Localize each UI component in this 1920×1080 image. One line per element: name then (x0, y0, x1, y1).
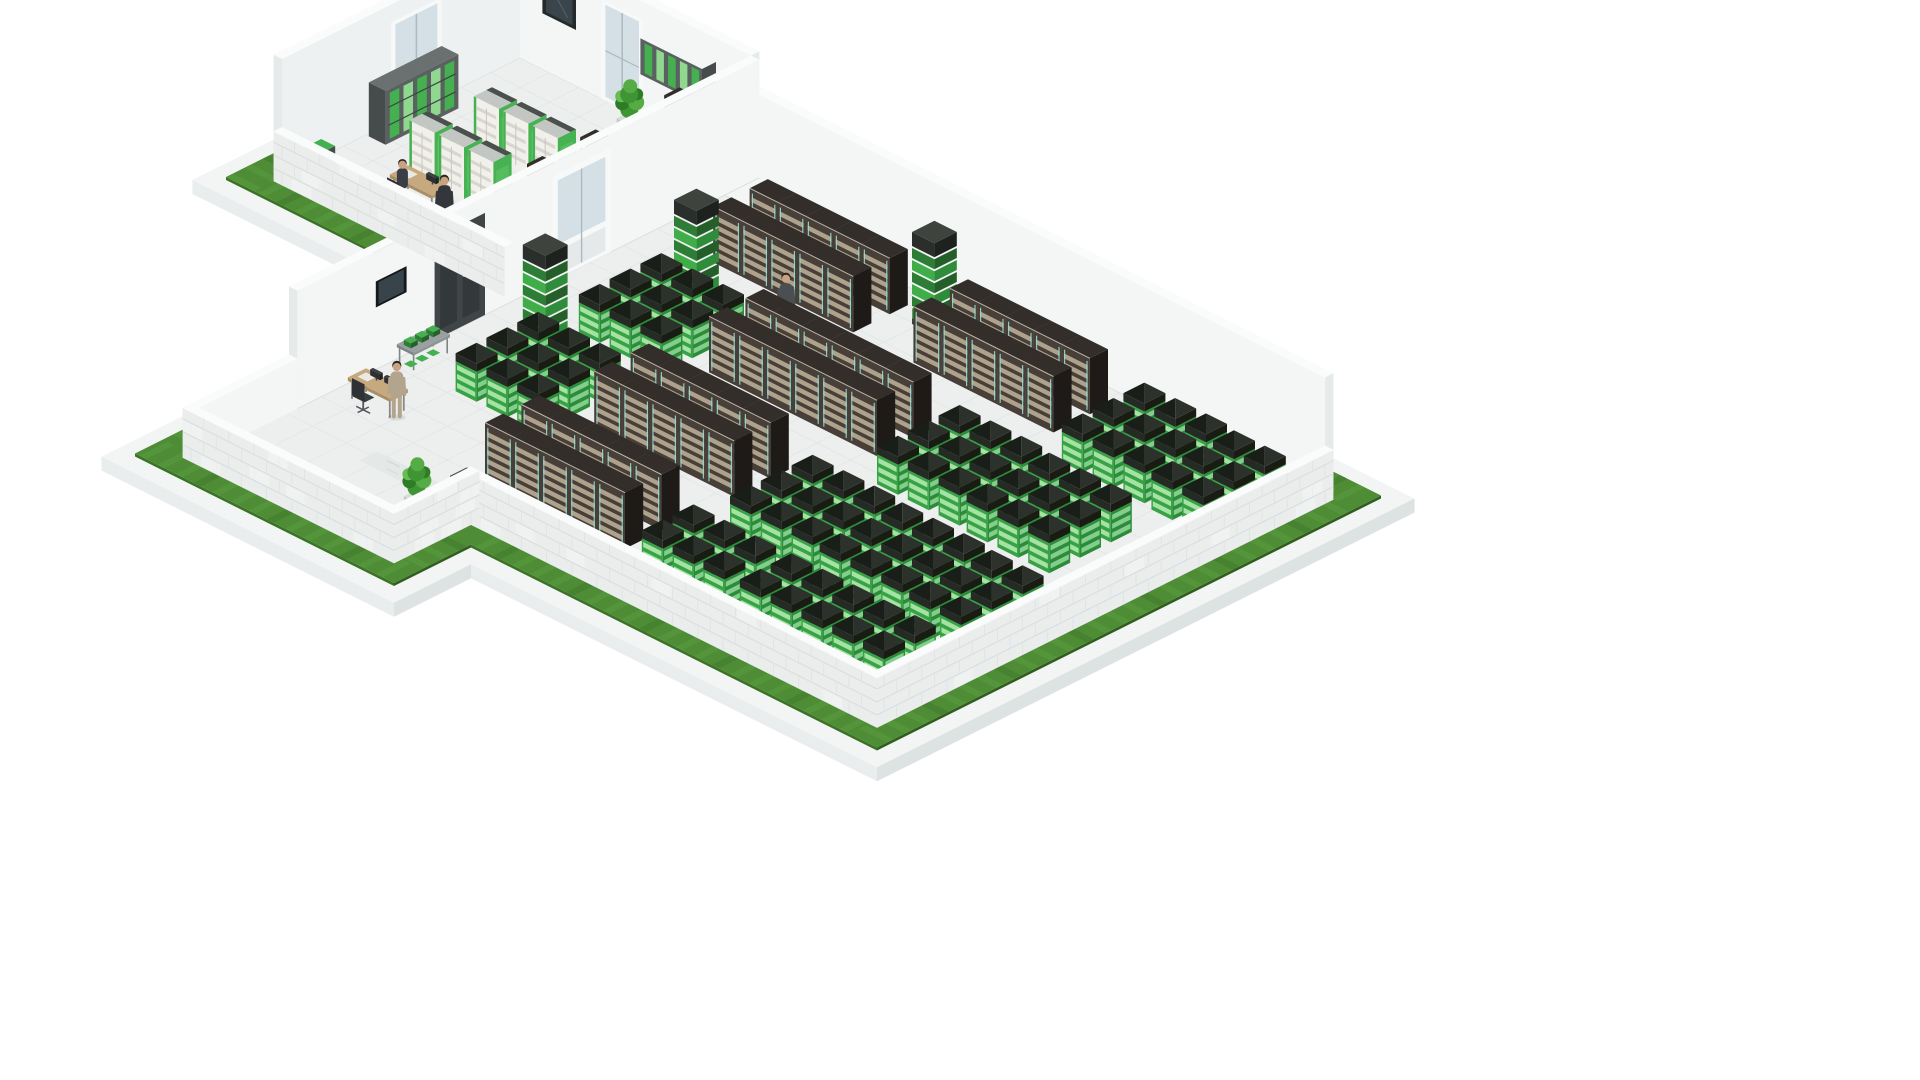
datacenter-isometric-illustration (0, 0, 1920, 1080)
datacenter-illustration-stage (0, 0, 1920, 1080)
